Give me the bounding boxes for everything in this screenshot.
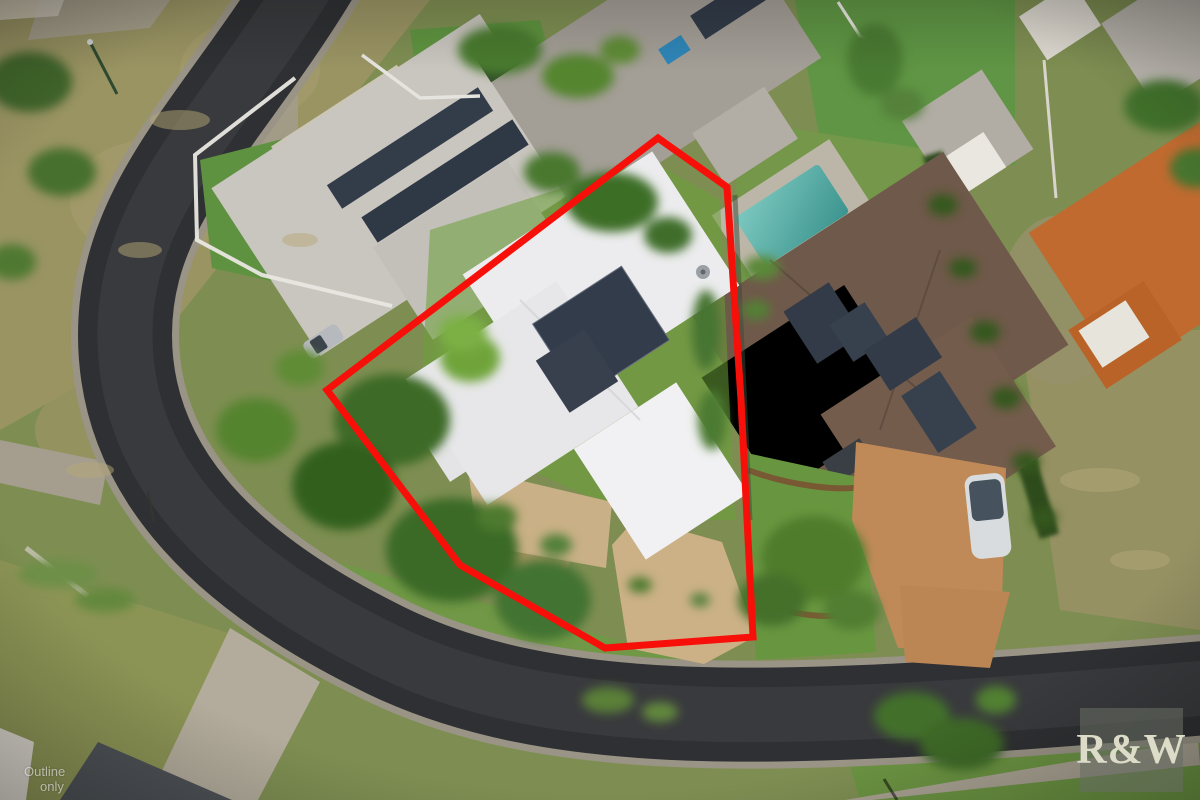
vignette xyxy=(0,0,1200,800)
disclaimer-watermark: Outline only xyxy=(24,764,65,794)
disclaimer-line-1: Outline xyxy=(24,764,65,779)
disclaimer-line-2: only xyxy=(40,779,65,794)
aerial-scene xyxy=(0,0,1200,800)
agency-logo-text: R&W xyxy=(1076,726,1186,774)
agency-logo: R&W xyxy=(1080,708,1183,792)
aerial-photo: Outline only R&W xyxy=(0,0,1200,800)
